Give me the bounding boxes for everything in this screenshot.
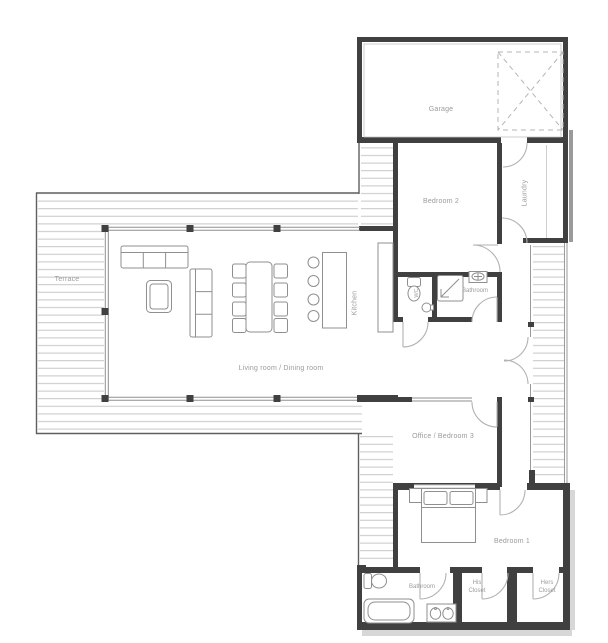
wc-door-arc	[403, 322, 428, 347]
label-bathroom-master: Bathroom	[409, 584, 435, 590]
bathtub	[364, 599, 414, 623]
label-office-bedroom3: Office / Bedroom 3	[412, 433, 474, 440]
kitchen-counter	[378, 243, 393, 332]
floor-plan-drawing: Terrace Garage Bedroom 2 Laundry Kitchen…	[0, 0, 608, 643]
master-toilet	[364, 574, 387, 589]
wc-sink	[422, 303, 434, 312]
bedroom1-door-arc	[500, 490, 525, 515]
garage-parking-mark	[498, 52, 563, 130]
bedroom2-door-arc	[473, 245, 500, 272]
shower	[438, 276, 464, 302]
room-labels: Terrace Garage Bedroom 2 Laundry Kitchen…	[55, 106, 556, 594]
dining-table	[246, 262, 272, 332]
label-kitchen: Kitchen	[352, 291, 359, 316]
label-garage: Garage	[429, 106, 454, 113]
label-living-dining: Living room / Dining room	[239, 365, 324, 372]
label-hers-closet-2: Closet	[538, 588, 555, 594]
bathroom-small-door-arc	[472, 297, 497, 322]
label-bedroom2: Bedroom 2	[423, 198, 459, 205]
sofa-vertical	[190, 269, 212, 337]
kitchen-island	[323, 253, 347, 329]
floor-plan: Terrace Garage Bedroom 2 Laundry Kitchen…	[0, 0, 608, 643]
label-hers-closet: Hers	[541, 580, 554, 586]
label-his-closet-2: Closet	[468, 588, 485, 594]
armchair	[147, 281, 172, 313]
sofa-horizontal	[121, 246, 188, 268]
bar-stools	[308, 257, 319, 322]
label-bedroom1: Bedroom 1	[494, 538, 530, 545]
label-laundry: Laundry	[522, 179, 529, 206]
label-terrace: Terrace	[55, 276, 80, 283]
office-door-arc	[472, 402, 497, 427]
bed	[410, 489, 488, 543]
hers-closet-door-arc	[533, 573, 559, 599]
label-bathroom-small: Bathroom	[462, 288, 488, 294]
garage-door-arc	[503, 143, 527, 167]
double-sink	[427, 604, 456, 622]
label-his-closet: His	[473, 580, 482, 586]
bathroom-small-sink	[469, 272, 487, 283]
label-wc: WC	[414, 288, 420, 297]
entry-french-doors	[504, 337, 528, 384]
his-closet-door-arc	[482, 573, 508, 599]
